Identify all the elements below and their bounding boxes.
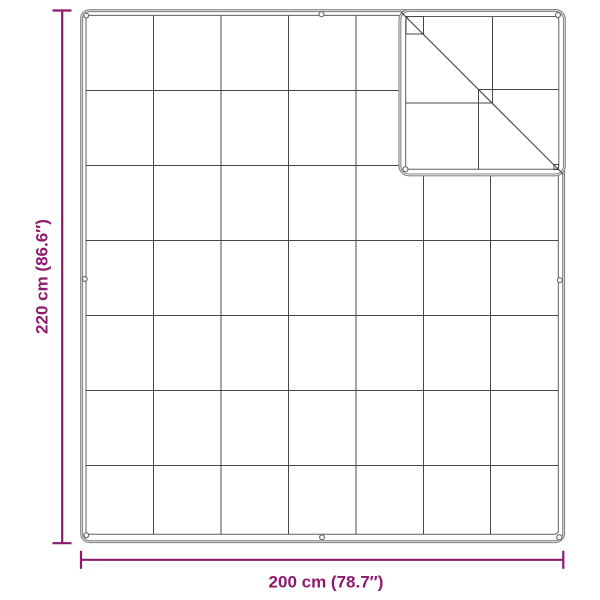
svg-text:200 cm (78.7″): 200 cm (78.7″) xyxy=(269,573,384,592)
svg-text:220 cm (86.6″): 220 cm (86.6″) xyxy=(33,219,52,334)
